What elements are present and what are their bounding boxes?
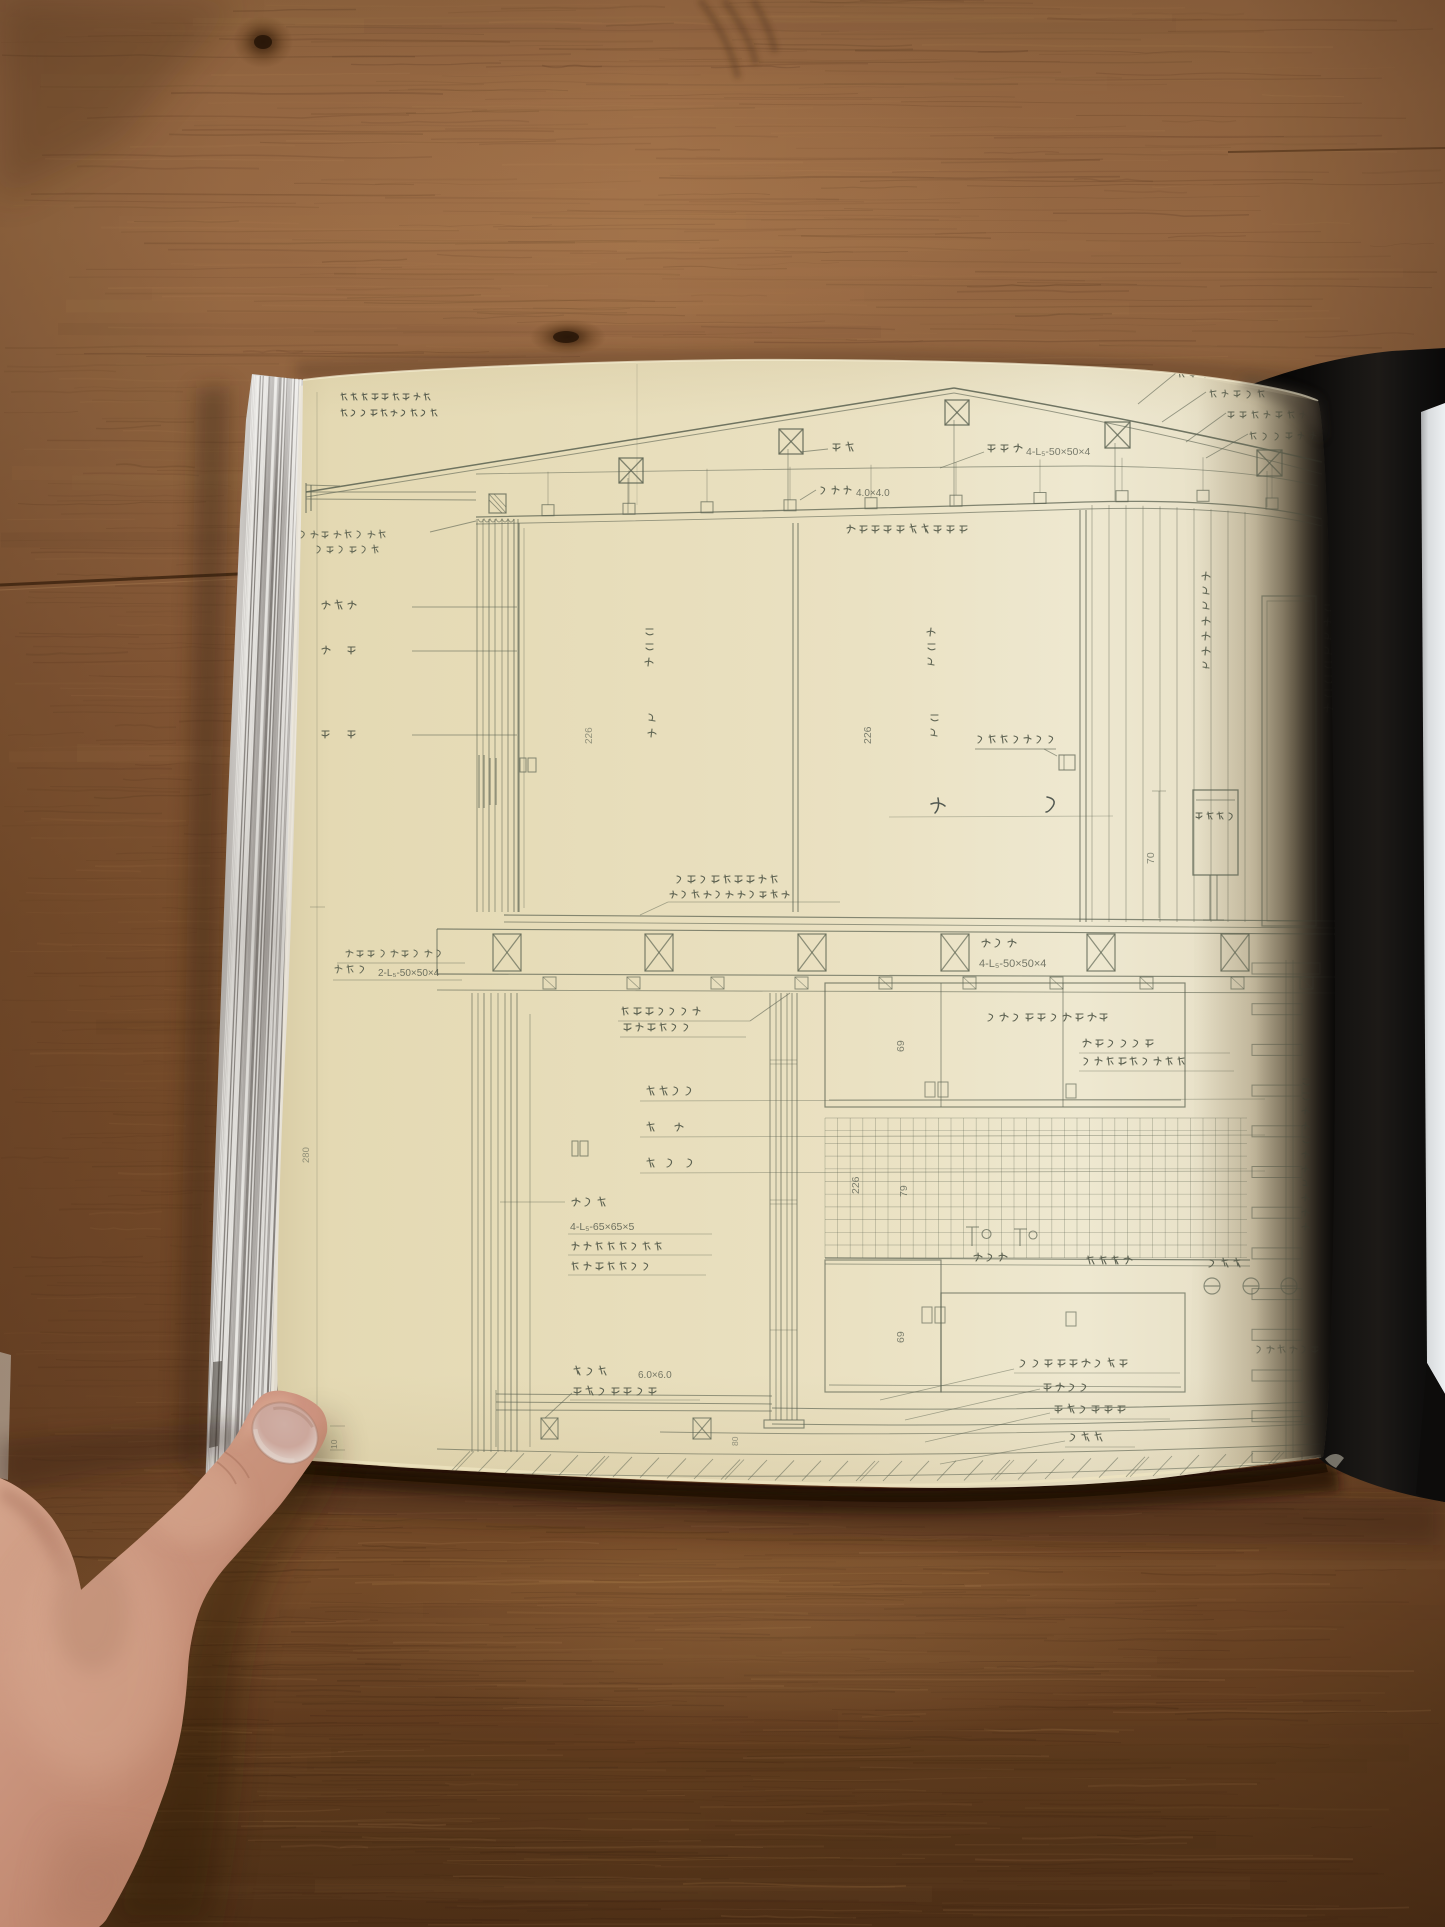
svg-text:69: 69 xyxy=(895,1040,907,1052)
svg-text:80: 80 xyxy=(730,1436,740,1446)
svg-text:280: 280 xyxy=(301,1147,312,1163)
svg-text:226: 226 xyxy=(850,1176,862,1194)
svg-text:4-L₅-65×65×5: 4-L₅-65×65×5 xyxy=(570,1221,635,1233)
svg-text:69: 69 xyxy=(895,1331,907,1343)
svg-text:79: 79 xyxy=(898,1185,910,1197)
svg-text:6.0×6.0: 6.0×6.0 xyxy=(638,1370,672,1381)
svg-text:70: 70 xyxy=(1145,852,1157,864)
svg-text:226: 226 xyxy=(862,726,874,744)
svg-text:4.0×4.0: 4.0×4.0 xyxy=(856,488,890,499)
svg-text:4-L₅-50×50×4: 4-L₅-50×50×4 xyxy=(979,958,1046,970)
svg-text:226: 226 xyxy=(584,727,595,744)
svg-text:4-L₅-50×50×4: 4-L₅-50×50×4 xyxy=(1026,446,1091,458)
svg-text:2-L₅-50×50×4: 2-L₅-50×50×4 xyxy=(378,968,440,979)
